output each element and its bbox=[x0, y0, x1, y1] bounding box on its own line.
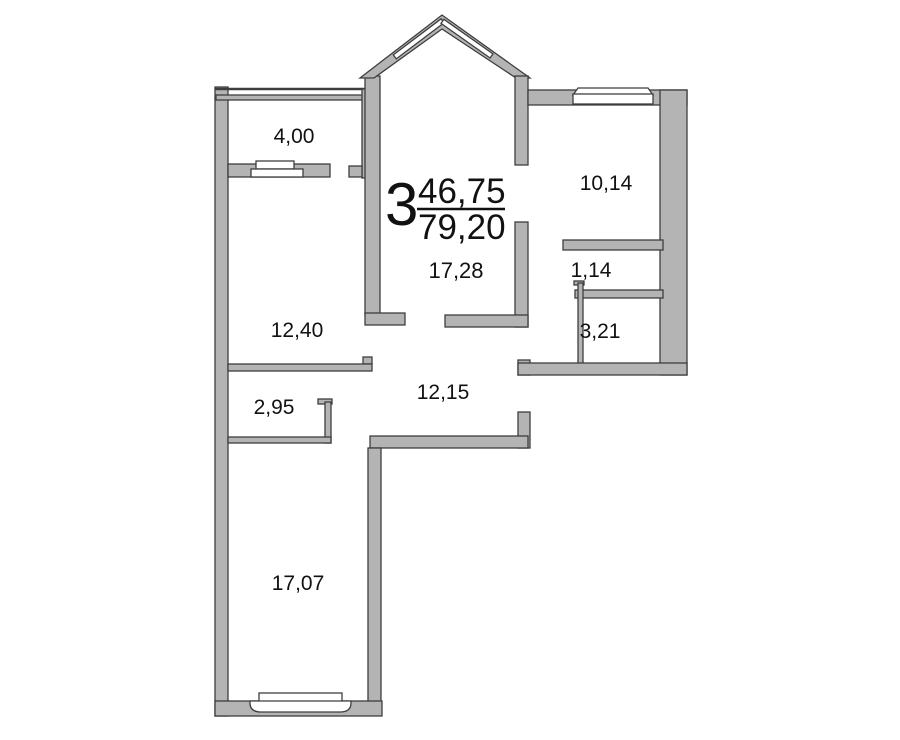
room-area-storage: 1,14 bbox=[571, 259, 612, 282]
total-area-label: 79,20 bbox=[418, 208, 506, 247]
bottom-window-sill bbox=[250, 701, 351, 712]
wall-living-bottom bbox=[445, 315, 528, 327]
wall-closet-bottom bbox=[228, 437, 331, 443]
room-area-living-room: 17,28 bbox=[428, 258, 483, 283]
living-area-label: 46,75 bbox=[418, 172, 506, 211]
wall-outer-left bbox=[215, 87, 228, 716]
wall-living-left bbox=[365, 76, 380, 315]
room-area-balcony: 4,00 bbox=[274, 125, 315, 148]
wall-living-left-foot bbox=[365, 313, 405, 325]
balcony-window bbox=[251, 169, 303, 177]
area-summary: 3 46,75 79,20 bbox=[385, 171, 506, 247]
room-area-bedroom-left: 12,40 bbox=[271, 319, 324, 342]
wall-right-section-bottom bbox=[518, 363, 687, 375]
wall-hallway-bottom bbox=[370, 436, 528, 448]
room-area-hallway: 12,15 bbox=[417, 381, 470, 404]
bay-window-right bbox=[441, 19, 493, 58]
wall-bedroom-left-bottom bbox=[228, 364, 372, 371]
walls bbox=[215, 15, 687, 716]
balcony-window-sill bbox=[256, 161, 294, 169]
room-area-bedroom-bottom: 17,07 bbox=[272, 572, 325, 595]
wall-balcony-door-jamb bbox=[349, 166, 362, 177]
wall-living-right-upper bbox=[515, 76, 528, 165]
rooms-count-label: 3 bbox=[385, 171, 418, 238]
wall-bathroom-top bbox=[575, 290, 663, 298]
wall-storage-top bbox=[563, 240, 663, 250]
wall-outer-right bbox=[660, 90, 687, 375]
room-area-bathroom: 3,21 bbox=[580, 320, 621, 343]
wall-bedroom-left-notch bbox=[363, 357, 372, 364]
bay-window-left bbox=[393, 19, 444, 59]
wall-living-right-lower bbox=[515, 222, 528, 327]
floor-plan: 3 46,75 79,20 17,28 4,00 10,14 12,40 1,1… bbox=[0, 0, 900, 740]
room-area-bedroom-top-right: 10,14 bbox=[580, 172, 633, 195]
wall-bottom-room-right bbox=[368, 448, 381, 710]
labels: 3 46,75 79,20 17,28 4,00 10,14 12,40 1,1… bbox=[254, 125, 633, 595]
room-area-closet: 2,95 bbox=[254, 396, 295, 419]
floor-plan-page: 3 46,75 79,20 17,28 4,00 10,14 12,40 1,1… bbox=[0, 0, 900, 740]
top-right-window bbox=[573, 94, 653, 104]
balcony-rail-inner bbox=[216, 95, 376, 100]
